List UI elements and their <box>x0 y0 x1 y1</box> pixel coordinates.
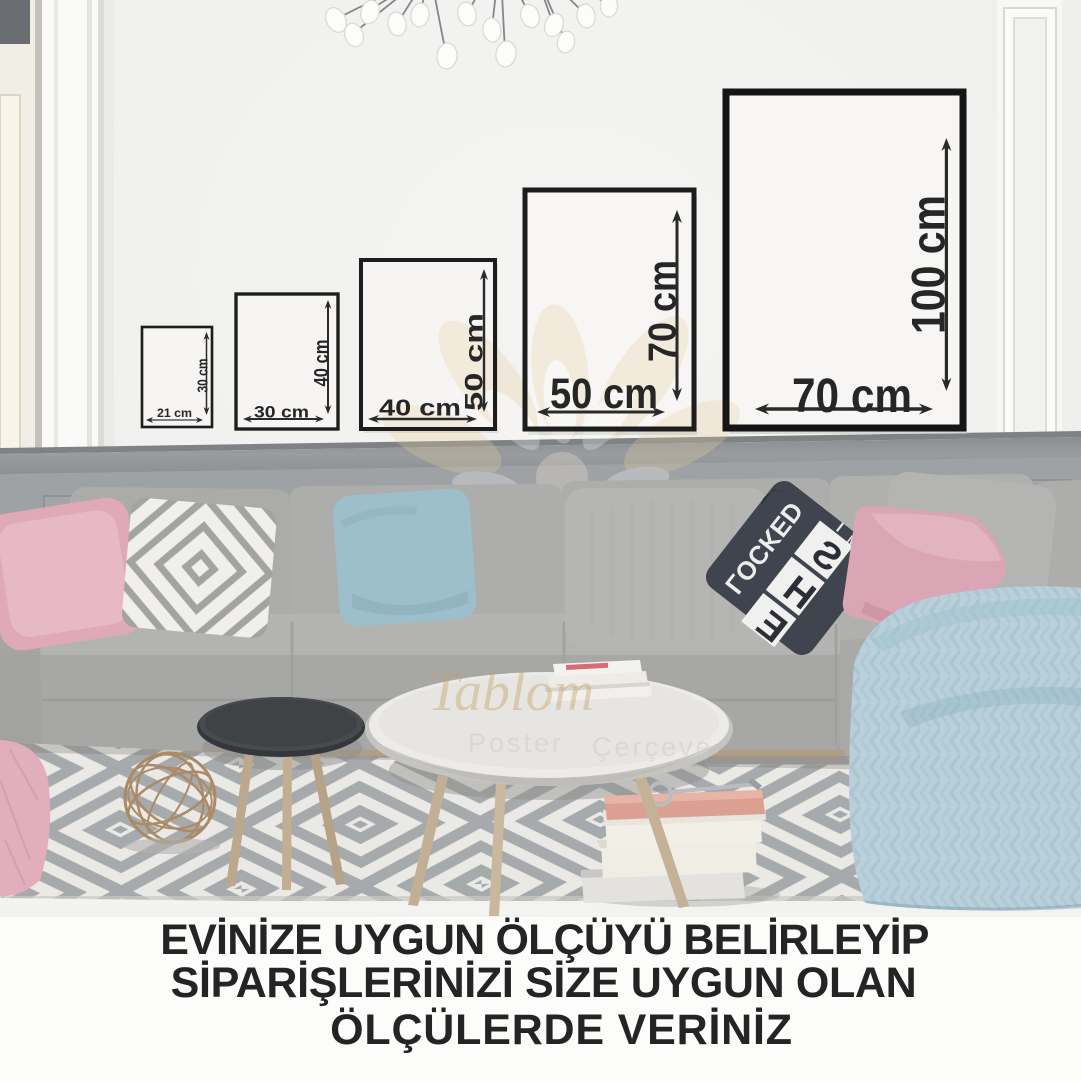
svg-text:40 cm: 40 cm <box>379 395 461 421</box>
svg-text:Poster: Poster <box>468 728 564 758</box>
svg-text:Çerçeve: Çerçeve <box>592 732 714 762</box>
svg-text:40 cm: 40 cm <box>311 340 333 387</box>
svg-text:100 cm: 100 cm <box>902 195 955 334</box>
svg-text:50 cm: 50 cm <box>550 370 658 418</box>
svg-text:30 cm: 30 cm <box>195 359 212 393</box>
svg-text:70 cm: 70 cm <box>642 260 685 362</box>
svg-text:70 cm: 70 cm <box>792 370 912 423</box>
svg-text:21 cm: 21 cm <box>157 406 192 420</box>
svg-text:50 cm: 50 cm <box>461 313 489 411</box>
svg-text:30 cm: 30 cm <box>254 403 309 422</box>
svg-text:Tablom: Tablom <box>428 661 594 723</box>
